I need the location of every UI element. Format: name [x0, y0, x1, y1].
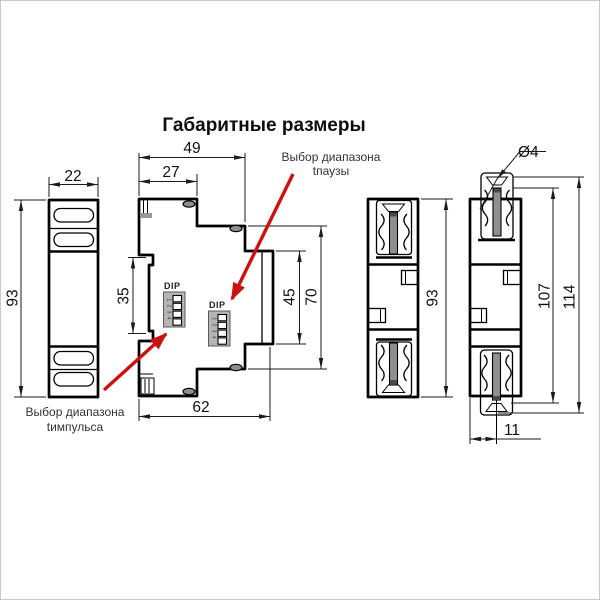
dim-inner-height: 107: [537, 283, 554, 309]
dim-side-front-depth: 27: [162, 164, 179, 181]
screw: [183, 201, 195, 207]
din-clip-spring: [140, 213, 152, 218]
drawing-canvas: Габаритные размеры 22 93: [0, 0, 600, 600]
view-front: 22 93: [5, 168, 99, 397]
dim-rear-height: 93: [425, 289, 442, 306]
annotation-pulse-line1: Выбор диапазона: [26, 405, 125, 419]
dim-hole-diameter: Ø4: [518, 144, 539, 161]
dim-side-rail-recess: 35: [116, 287, 133, 304]
dim-side-body-height: 70: [304, 288, 321, 306]
dim-terminal-offset: 11: [504, 422, 520, 439]
dip2-label: DIP: [209, 300, 226, 310]
side-body-outline: [139, 199, 273, 396]
screw: [183, 388, 195, 394]
screw: [230, 364, 242, 370]
terminal-funnel: [487, 177, 508, 185]
terminal-contact: [493, 353, 501, 400]
dim-total-height: 114: [562, 284, 579, 309]
annotation-pulse: Выбор диапазона tимпульса: [26, 405, 125, 434]
dim-side-bottom-depth: 62: [192, 399, 209, 416]
view-rear: 93: [368, 199, 453, 397]
annotation-pause: Выбор диапазона tпаузы: [282, 150, 381, 178]
annotation-pulse-line2: tимпульса: [47, 420, 104, 434]
dip1-numbers: 1 2 3 4: [166, 298, 172, 320]
dim-side-rear-step: 45: [282, 288, 299, 305]
terminal-contact: [493, 188, 501, 236]
terminal-contact: [390, 343, 398, 385]
annotation-pause-line1: Выбор диапазона: [282, 150, 381, 164]
annotation-pause-line2: tпаузы: [313, 164, 350, 178]
dimensional-drawing: Габаритные размеры 22 93: [0, 0, 600, 600]
view-rear-extended: Ø4 107 114 11: [470, 144, 584, 444]
dim-front-height: 93: [5, 289, 22, 306]
dim-side-total-depth: 49: [183, 140, 200, 157]
terminal-contact: [390, 212, 398, 254]
dip1-label: DIP: [164, 281, 181, 291]
page-title: Габаритные размеры: [162, 115, 365, 136]
view-side-profile: DIP 1 2 3 4 DIP 1 2 3 4 49 27: [116, 140, 328, 421]
dip2-numbers: 1 2 3 4: [211, 317, 217, 339]
front-body: [49, 200, 98, 397]
screw: [230, 225, 242, 231]
dim-front-width: 22: [64, 168, 81, 185]
